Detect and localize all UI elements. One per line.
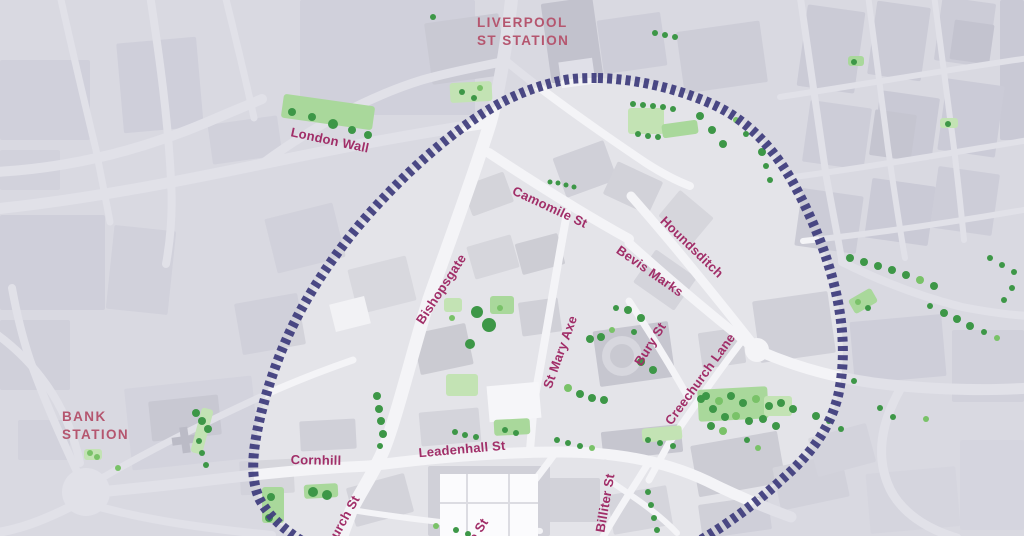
tree-dot xyxy=(564,183,569,188)
tree-dot xyxy=(453,527,459,533)
tree-dot xyxy=(1009,285,1015,291)
tree-dot xyxy=(994,335,1000,341)
tree-dot xyxy=(586,335,594,343)
grass-patch xyxy=(446,374,478,396)
tree-dot xyxy=(927,303,933,309)
tree-dot xyxy=(966,322,974,330)
tree-dot xyxy=(588,394,596,402)
landmark-building xyxy=(487,382,542,422)
tree-dot xyxy=(597,333,605,341)
tree-dot xyxy=(732,412,740,420)
tree-dot xyxy=(375,405,383,413)
tree-dot xyxy=(763,163,769,169)
grass-patch xyxy=(444,298,462,312)
tree-dot xyxy=(94,454,100,460)
tree-dot xyxy=(471,95,477,101)
tree-dot xyxy=(322,490,332,500)
building-block xyxy=(299,419,356,452)
tree-dot xyxy=(744,437,750,443)
grass-patch xyxy=(628,108,664,134)
tree-dot xyxy=(846,254,854,262)
tree-dot xyxy=(865,305,871,311)
tree-dot xyxy=(923,416,929,422)
market-aisle xyxy=(440,502,538,504)
tree-dot xyxy=(759,415,767,423)
tree-dot xyxy=(609,327,615,333)
tree-dot xyxy=(373,392,381,400)
tree-dot xyxy=(672,34,678,40)
tree-dot xyxy=(981,329,987,335)
tree-dot xyxy=(430,14,436,20)
tree-dot xyxy=(987,255,993,261)
tree-dot xyxy=(459,89,465,95)
tree-dot xyxy=(87,450,93,456)
tree-dot xyxy=(288,108,296,116)
city-map-figure: LIVERPOOL ST STATIONBANK STATIONLondon W… xyxy=(0,0,1024,536)
tree-dot xyxy=(652,30,658,36)
aldgate-junction xyxy=(745,338,769,362)
tree-dot xyxy=(482,318,496,332)
tree-dot xyxy=(945,121,951,127)
tree-dot xyxy=(890,414,896,420)
tree-dot xyxy=(377,443,383,449)
tree-dot xyxy=(916,276,924,284)
tree-dot xyxy=(743,131,749,137)
tree-dot xyxy=(477,85,483,91)
tree-dot xyxy=(462,432,468,438)
tree-dot xyxy=(930,282,938,290)
tree-dot xyxy=(752,395,760,403)
tree-dot xyxy=(851,59,857,65)
tree-dot xyxy=(670,443,676,449)
tree-dot xyxy=(630,101,636,107)
tree-dot xyxy=(624,306,632,314)
tree-dot xyxy=(471,306,483,318)
tree-dot xyxy=(721,413,729,421)
tree-dot xyxy=(789,405,797,413)
tree-dot xyxy=(497,305,503,311)
tree-dot xyxy=(812,412,820,420)
tree-dot xyxy=(645,489,651,495)
tree-dot xyxy=(548,180,553,185)
tree-dot xyxy=(660,104,666,110)
map-canvas xyxy=(0,0,1024,536)
tree-dot xyxy=(999,262,1005,268)
tree-dot xyxy=(953,315,961,323)
tree-dot xyxy=(637,314,645,322)
tree-dot xyxy=(765,402,773,410)
tree-dot xyxy=(198,417,206,425)
building-block xyxy=(419,407,482,446)
tree-dot xyxy=(465,339,475,349)
tree-dot xyxy=(709,405,717,413)
tree-dot xyxy=(651,515,657,521)
tree-dot xyxy=(851,378,857,384)
tree-dot xyxy=(702,392,710,400)
tree-dot xyxy=(115,465,121,471)
tree-dot xyxy=(767,177,773,183)
tree-dot xyxy=(877,405,883,411)
tree-dot xyxy=(589,445,595,451)
tree-dot xyxy=(577,443,583,449)
tree-dot xyxy=(328,119,338,129)
tree-dot xyxy=(196,438,202,444)
tree-dot xyxy=(600,396,608,404)
tree-dot xyxy=(874,262,882,270)
tree-dot xyxy=(755,445,761,451)
tree-dot xyxy=(554,437,560,443)
tree-dot xyxy=(902,271,910,279)
tree-dot xyxy=(650,103,656,109)
tree-dot xyxy=(364,131,372,139)
tree-dot xyxy=(855,299,861,305)
tree-dot xyxy=(637,358,645,366)
tree-dot xyxy=(838,426,844,432)
tree-dot xyxy=(655,134,661,140)
tree-dot xyxy=(719,140,727,148)
tree-dot xyxy=(1001,297,1007,303)
tree-dot xyxy=(772,422,780,430)
market-aisle xyxy=(508,474,510,536)
market-aisle xyxy=(466,474,468,536)
tree-dot xyxy=(648,502,654,508)
tree-dot xyxy=(1011,269,1017,275)
grass-patch xyxy=(450,81,493,103)
tree-dot xyxy=(631,329,637,335)
tree-dot xyxy=(452,429,458,435)
tree-dot xyxy=(199,450,205,456)
tree-dot xyxy=(635,131,641,137)
tree-dot xyxy=(572,185,577,190)
tree-dot xyxy=(513,430,519,436)
tree-dot xyxy=(670,106,676,112)
tree-dot xyxy=(657,440,663,446)
tree-dot xyxy=(654,527,660,533)
tree-dot xyxy=(649,366,657,374)
tree-dot xyxy=(556,181,561,186)
landmark-building xyxy=(440,474,538,536)
tree-dot xyxy=(640,102,646,108)
tree-dot xyxy=(707,422,715,430)
tree-dot xyxy=(203,462,209,468)
tree-dot xyxy=(727,392,735,400)
tree-dot xyxy=(715,397,723,405)
tree-dot xyxy=(888,266,896,274)
tree-dot xyxy=(645,133,651,139)
tree-dot xyxy=(662,32,668,38)
tree-dot xyxy=(719,427,727,435)
tree-dot xyxy=(613,305,619,311)
tree-dot xyxy=(564,384,572,392)
tree-dot xyxy=(379,430,387,438)
tree-dot xyxy=(502,427,508,433)
tree-dot xyxy=(565,440,571,446)
tree-dot xyxy=(433,523,439,529)
building-block xyxy=(518,297,562,336)
tree-dot xyxy=(576,390,584,398)
tree-dot xyxy=(449,315,455,321)
tree-dot xyxy=(204,425,212,433)
tree-dot xyxy=(940,309,948,317)
tree-dot xyxy=(267,493,275,501)
tree-dot xyxy=(860,258,868,266)
tree-dot xyxy=(473,434,479,440)
tree-dot xyxy=(377,417,385,425)
tree-dot xyxy=(739,399,747,407)
grass-patch xyxy=(494,418,531,436)
tree-dot xyxy=(348,126,356,134)
tree-dot xyxy=(696,112,704,120)
tree-dot xyxy=(708,126,716,134)
tree-dot xyxy=(192,409,200,417)
gherkin-building xyxy=(610,344,634,368)
grass-patch xyxy=(490,296,514,314)
tree-dot xyxy=(308,487,318,497)
tree-dot xyxy=(777,399,785,407)
tree-dot xyxy=(745,417,753,425)
tree-dot xyxy=(308,113,316,121)
tree-dot xyxy=(645,437,651,443)
